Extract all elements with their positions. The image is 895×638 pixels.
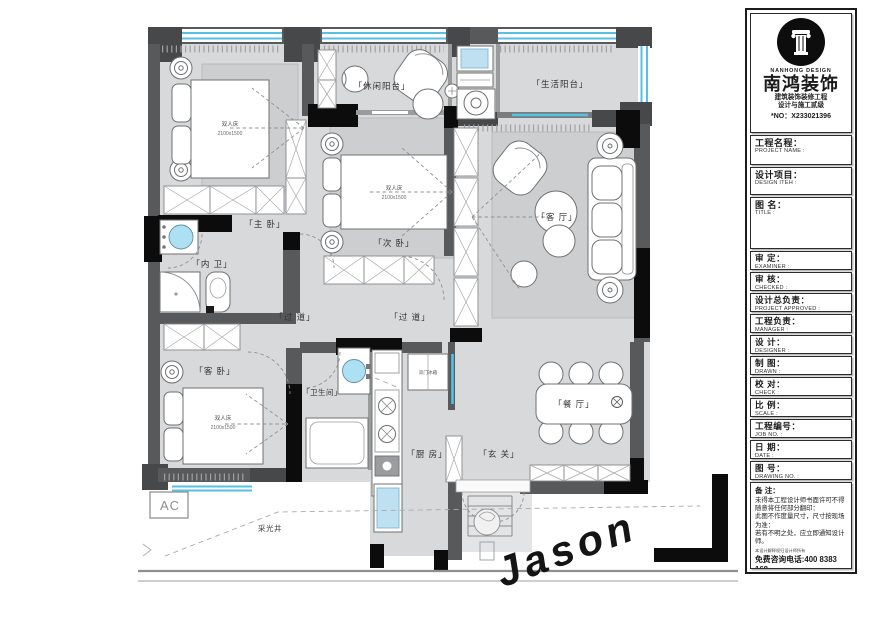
svg-text:双人床: 双人床 [386, 184, 403, 192]
label-guest-bedroom: 「客 卧」 [194, 366, 235, 376]
notes-box: 备 注： 未得本工程设计师书面许可不得 随意将任何部分翻印： 此图不作度量尺寸，… [750, 482, 852, 569]
brand-cert-1: 建筑装饰装修工程 [775, 94, 828, 102]
hotline: 免费咨询电话:400 8383 168 [755, 554, 847, 569]
dining-set: 「餐 厅」 [536, 362, 632, 444]
svg-text:双人床: 双人床 [222, 120, 239, 128]
field-checked: 审 核： CHECKED : [750, 272, 852, 291]
floor-plan: 双人床 2100x1500 双人床 2100x1500 [0, 0, 745, 633]
label-kitchen: 「厨 房」 [406, 449, 447, 459]
svg-text:双门冰箱: 双门冰箱 [419, 369, 438, 376]
label-leisure-balcony: 「休闲阳台」 [353, 81, 410, 91]
utility-sink-washer [457, 46, 495, 119]
brand-box: NANHONG DESIGN 南鸿装饰 建筑装饰装修工程 设计与施工贰级 *NO… [750, 13, 852, 133]
svg-text:2100x1500: 2100x1500 [218, 131, 243, 137]
svg-text:2100x1500: 2100x1500 [211, 425, 236, 431]
label-entry: 「玄 关」 [478, 449, 519, 459]
drawing-sheet: 双人床 2100x1500 双人床 2100x1500 [0, 0, 895, 633]
field-designer: 设 计： DESIGNER : [750, 335, 852, 354]
field-title: 图 名： TITLE : [750, 197, 852, 249]
field-project-approved: 设计总负责： PROJECT APPROVED : [750, 293, 852, 312]
label-corridor-2: 「过 道」 [389, 312, 430, 322]
brand-cert-no: *NO：X233021396 [771, 111, 831, 121]
label-living-room: 「客 厅」 [536, 212, 577, 222]
label-second-bedroom: 「次 卧」 [373, 238, 414, 248]
field-job-no: 工程编号： JOB NO. : [750, 419, 852, 438]
title-block: NANHONG DESIGN 南鸿装饰 建筑装饰装修工程 设计与施工贰级 *NO… [745, 8, 857, 574]
brand-cert-2: 设计与施工贰级 [778, 102, 824, 110]
field-design-item: 设计项目： DESIGN ITEH : [750, 167, 852, 195]
field-manager: 工程负责： MANAGER : [750, 314, 852, 333]
light-well-label: 采光井 [258, 523, 282, 533]
label-bathroom: 「卫生间」 [302, 387, 342, 397]
field-examiner: 审 定： EXAMINER : [750, 251, 852, 270]
field-drawing-no: 图 号： DRAWING NO. : [750, 461, 852, 480]
svg-text:双人床: 双人床 [215, 414, 232, 422]
ac-label: AC [160, 498, 180, 513]
field-date: 日 期： DATE : [750, 440, 852, 459]
field-scale: 比 例： SCALE : [750, 398, 852, 417]
field-check: 校 对： CHECK : [750, 377, 852, 396]
svg-text:「餐 厅」: 「餐 厅」 [553, 399, 594, 409]
label-living-balcony: 「生活阳台」 [531, 79, 588, 89]
company-logo-icon [777, 18, 825, 66]
field-project-name: 工程名程： PROJECT NAME : [750, 135, 852, 165]
svg-text:2100x1500: 2100x1500 [382, 195, 407, 201]
label-inner-bathroom: 「内 卫」 [191, 259, 232, 269]
label-corridor-1: 「过 道」 [274, 312, 315, 322]
brand-name: 南鸿装饰 [763, 75, 839, 94]
field-drawn: 制 图： DRAWN : [750, 356, 852, 375]
notes-title: 备 注： [755, 485, 847, 496]
label-master-bedroom: 「主 卧」 [244, 219, 285, 229]
